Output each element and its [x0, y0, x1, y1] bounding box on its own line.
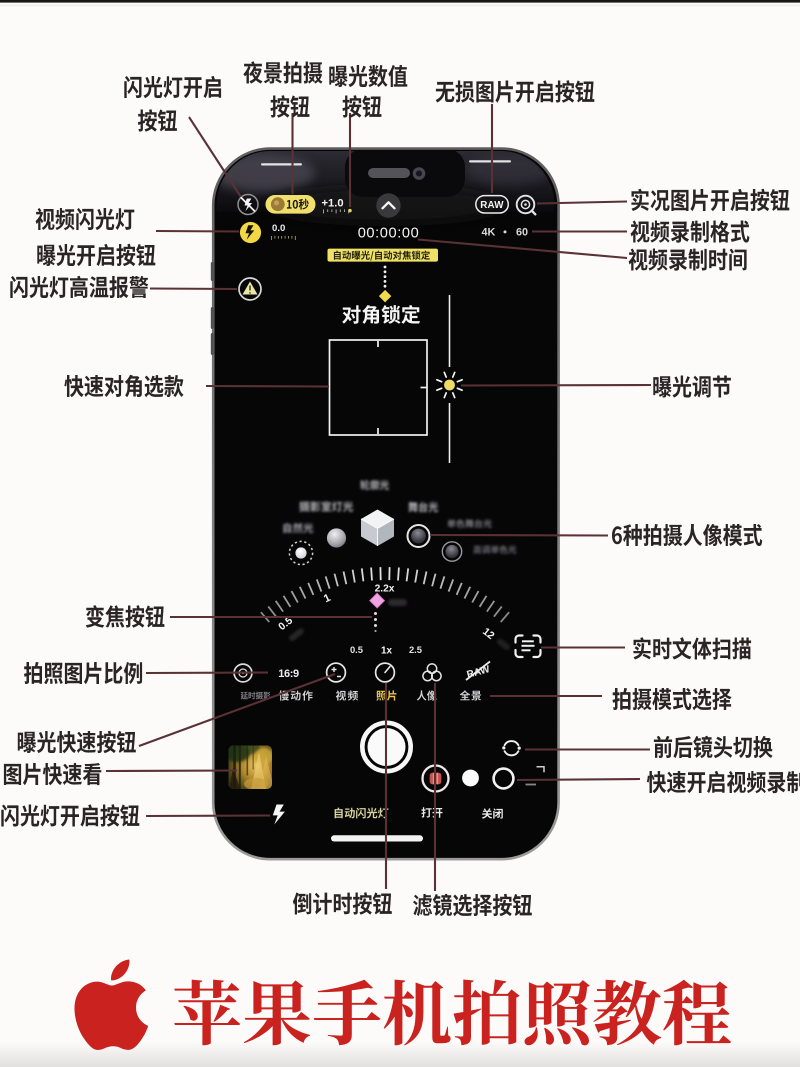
- svg-text:+1.0: +1.0: [322, 198, 344, 210]
- svg-text:0.5: 0.5: [350, 644, 363, 655]
- svg-text:0.0: 0.0: [272, 223, 285, 234]
- svg-text:1x: 1x: [381, 645, 392, 656]
- svg-text:2.2x: 2.2x: [375, 584, 395, 595]
- svg-text:00:00:00: 00:00:00: [358, 226, 420, 242]
- svg-text:RAW: RAW: [480, 200, 504, 211]
- svg-text:2.5: 2.5: [409, 644, 422, 655]
- svg-text:16:9: 16:9: [278, 668, 299, 680]
- svg-text:60: 60: [516, 227, 528, 239]
- svg-text:4K: 4K: [482, 227, 496, 239]
